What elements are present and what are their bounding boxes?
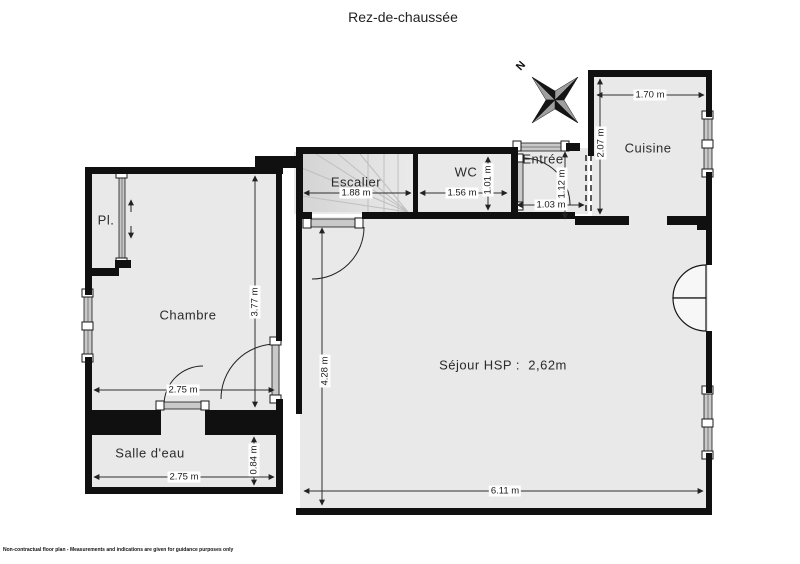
room-label-salle-deau: Salle d'eau [115,446,184,461]
dim-sejour-depth: 4.28 m [320,354,331,387]
page-title: Rez-de-chaussée [348,9,458,25]
dim-chambre-depth: 3.77 m [250,285,261,318]
dim-salle-deau-width: 2.75 m [167,472,200,483]
floor-plan: Rez-de-chaussée N Escalier 1.88 m WC 1.5… [0,0,800,564]
room-label-placard: Pl. [98,213,115,228]
room-label-entree: Entrée [522,152,563,167]
room-label-sejour: Séjour HSP : 2,62m [439,358,567,373]
dim-wc-depth: 1.01 m [483,163,494,196]
cuisine-window-icon [702,111,713,177]
dim-escalier-width: 1.88 m [339,188,372,199]
sejour-window-icon [702,386,713,459]
dim-cuisine-width: 1.70 m [633,90,666,101]
compass-icon [532,77,578,123]
dim-sejour-width: 6.11 m [489,486,521,497]
chambre-window-icon [82,289,93,362]
room-label-wc: WC [455,165,478,180]
dim-wc-width: 1.56 m [445,188,478,199]
floor-plan-drawing [0,0,800,564]
dim-salle-deau-depth: 0.84 m [249,443,260,476]
dim-cuisine-depth: 2.07 m [596,126,607,159]
dim-entree-depth: 1.12 m [557,167,568,200]
dim-chambre-width: 2.75 m [166,385,199,396]
dim-entree-width: 1.03 m [534,200,567,211]
room-label-cuisine: Cuisine [625,141,672,156]
room-label-chambre: Chambre [160,308,217,323]
disclaimer-text: Non-contractual floor plan - Measurement… [3,547,233,553]
entree-window-icon [513,141,569,151]
